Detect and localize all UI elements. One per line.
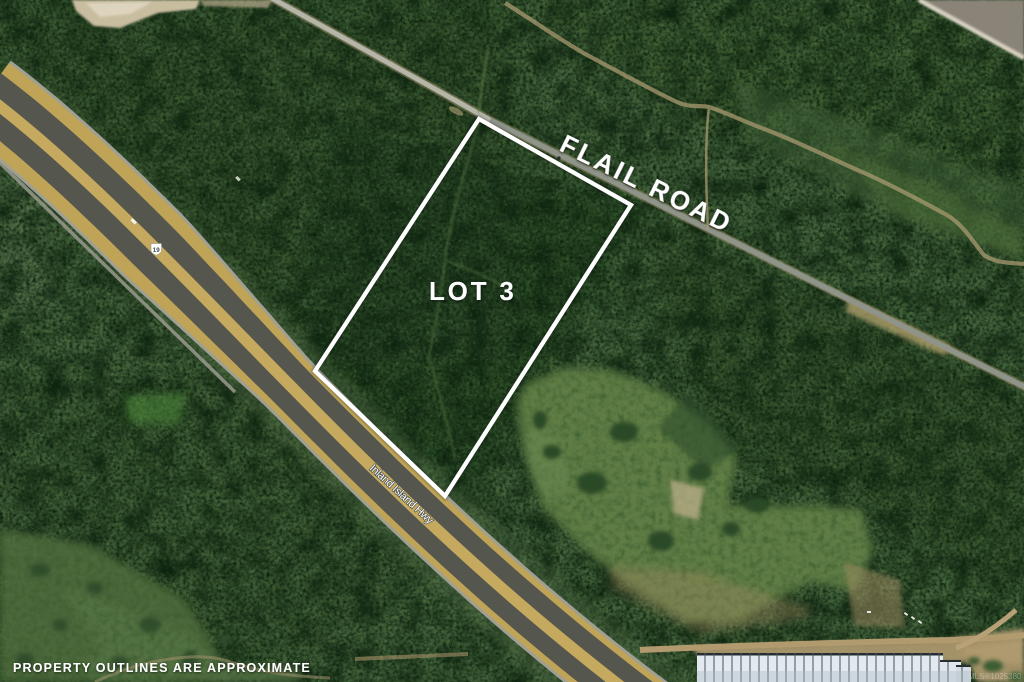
svg-text:MLS®1025380: MLS®1025380 — [968, 672, 1022, 681]
svg-text:19: 19 — [153, 247, 160, 254]
svg-text:PROPERTY OUTLINES ARE APPROXIM: PROPERTY OUTLINES ARE APPROXIMATE — [13, 661, 311, 675]
svg-text:LOT 3: LOT 3 — [429, 276, 517, 306]
